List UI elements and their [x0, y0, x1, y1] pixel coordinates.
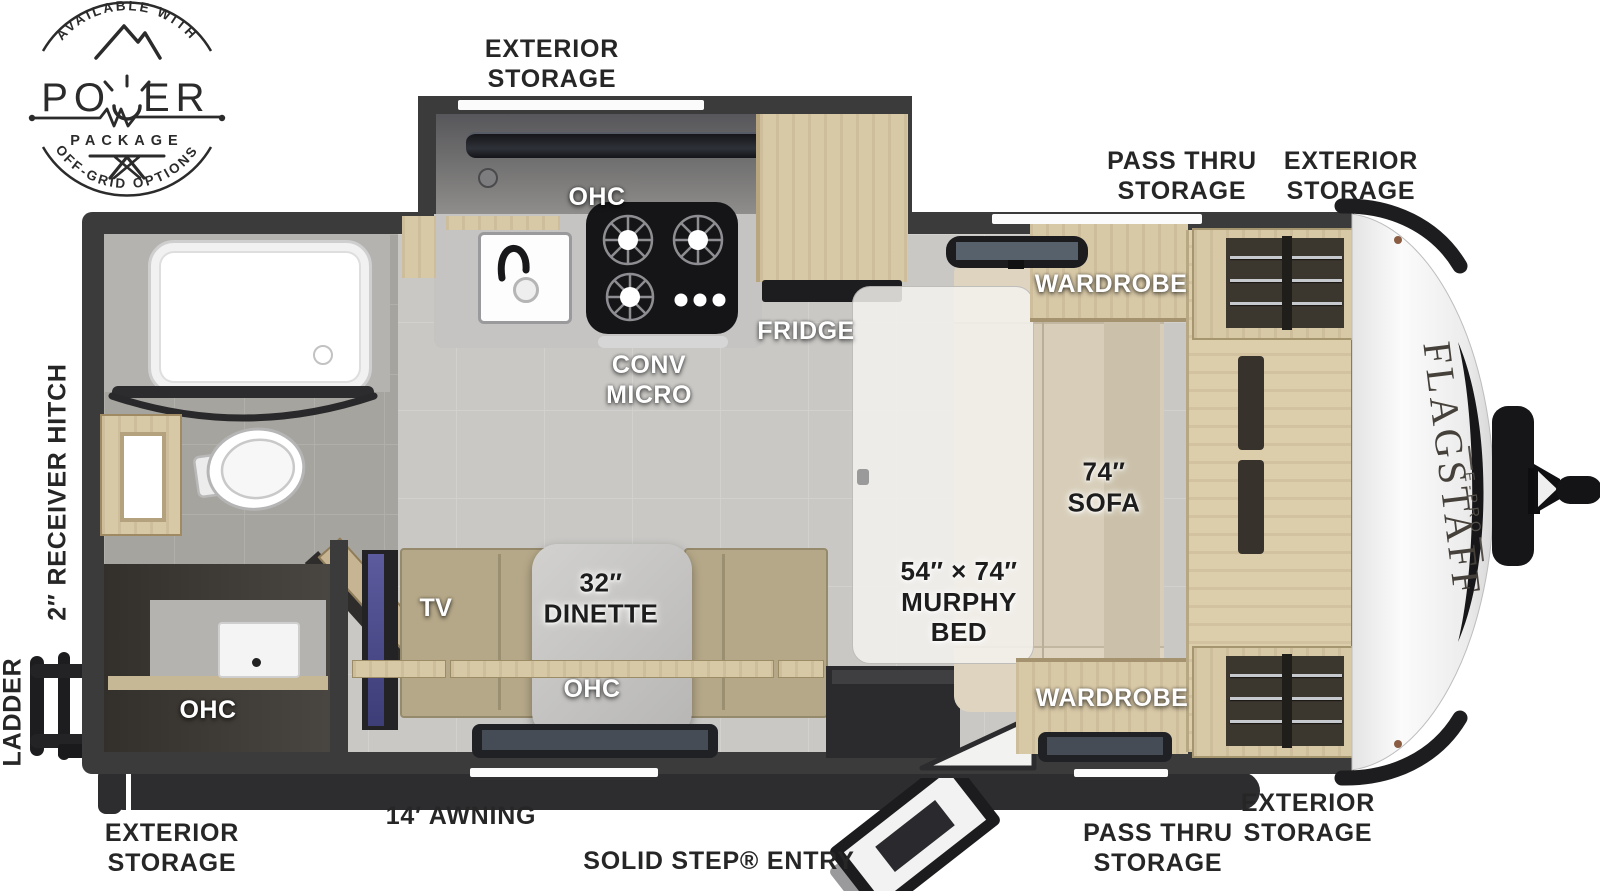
- sofa-label: 74″ SOFA: [1068, 456, 1141, 517]
- counter-end-panel: [402, 216, 436, 278]
- window-latch: [1008, 260, 1024, 269]
- storage-divider-wall: [330, 540, 348, 752]
- floorplan-scene: AVAILABLE WITH OFF-GRID OPTIONS PO ER PA…: [0, 0, 1600, 891]
- rear-storage-appliance: [218, 622, 300, 678]
- pass-thru-storage-label-bottom: PASS THRU STORAGE: [1083, 818, 1233, 878]
- conv-micro-label: CONV MICRO: [606, 350, 692, 410]
- entry-label: SOLID STEP® ENTRY: [583, 846, 854, 876]
- baggage-door-strip: [1074, 769, 1168, 777]
- exterior-storage-label-top: EXTERIOR STORAGE: [485, 34, 619, 94]
- bathtub: [148, 240, 372, 394]
- murphy-bed-label: 54″ × 74″ MURPHY BED: [901, 556, 1018, 648]
- dinette-bench-right: [684, 548, 828, 718]
- cooktop-knobs: [675, 294, 726, 307]
- power-package-badge: AVAILABLE WITH OFF-GRID OPTIONS PO ER PA…: [12, 0, 242, 210]
- sink-faucet-icon: [492, 218, 536, 284]
- kitchen-ohc-label: OHC: [568, 182, 625, 212]
- mountain-icon: [96, 26, 160, 58]
- murphy-bed-handle: [857, 469, 869, 485]
- window-glass: [956, 242, 1078, 260]
- pass-thru-post: [1282, 236, 1292, 330]
- baggage-door-strip: [458, 100, 704, 110]
- toilet: [190, 422, 310, 518]
- front-cap: FLAGSTAFF E-PRO: [1330, 190, 1600, 822]
- rear-storage-counter: [108, 676, 328, 690]
- cap-rivet: [1394, 236, 1402, 244]
- wardrobe-window: [1038, 732, 1172, 762]
- kitchen-backsplash-knob: [478, 168, 498, 188]
- bench-seam: [722, 554, 725, 710]
- bed-slat-slot: [1238, 460, 1264, 554]
- bumper-gap: [126, 770, 131, 812]
- dinette-ohc-shelf: [352, 660, 446, 678]
- wardrobe-bottom-label: WARDROBE: [1036, 683, 1189, 713]
- awning-bumper-bar: [104, 772, 1260, 810]
- badge-package-text: PACKAGE: [70, 133, 183, 149]
- dinette-window: [472, 724, 718, 758]
- badge-power-left: PO: [41, 76, 111, 120]
- tub-drain: [313, 345, 333, 365]
- badge-power-right: ER: [143, 76, 211, 120]
- exterior-storage-label-rear-bottom: EXTERIOR STORAGE: [105, 818, 239, 878]
- cap-rivet: [1394, 740, 1402, 748]
- pass-thru-post: [1282, 654, 1292, 748]
- fridge-label: FRIDGE: [757, 316, 854, 346]
- bench-seam: [498, 554, 501, 710]
- window-glass: [1047, 737, 1163, 755]
- entry-cabinet-top: [832, 670, 954, 684]
- dinette-ohc-label: OHC: [563, 674, 620, 704]
- sofa-seam: [1042, 266, 1044, 702]
- fridge-cabinet: [756, 114, 908, 282]
- svg-text:AVAILABLE WITH: AVAILABLE WITH: [53, 0, 201, 43]
- receiver-hitch-label: 2″ RECEIVER HITCH: [44, 363, 73, 621]
- tv-screen: [368, 554, 384, 726]
- baggage-door-strip: [992, 214, 1202, 224]
- tongue-jack-icon: [1492, 406, 1600, 566]
- dinette-ohc-shelf: [778, 660, 824, 678]
- oven-handle: [598, 336, 728, 348]
- exterior-storage-label-front-top: EXTERIOR STORAGE: [1284, 146, 1418, 206]
- bathroom-vanity: [100, 414, 182, 536]
- bed-slat-slot: [1238, 356, 1264, 450]
- sofa-window: [946, 236, 1088, 268]
- cooktop: [586, 202, 738, 334]
- exterior-storage-label-front-bottom: EXTERIOR STORAGE: [1241, 788, 1375, 848]
- rear-ohc-label: OHC: [179, 695, 236, 725]
- tv-label: TV: [420, 593, 453, 623]
- pass-thru-storage-label-top: PASS THRU STORAGE: [1107, 146, 1257, 206]
- badge-arc-top-text: AVAILABLE WITH: [53, 0, 201, 43]
- dinette-label: 32″ DINETTE: [544, 567, 659, 628]
- window-glass: [482, 730, 708, 750]
- rear-appliance-knob: [252, 658, 261, 667]
- vanity-mirror: [120, 432, 166, 522]
- awning-label: 14′ AWNING: [386, 801, 537, 831]
- baggage-door-strip: [470, 768, 658, 777]
- wardrobe-top-label: WARDROBE: [1035, 269, 1188, 299]
- ladder-label: LADDER: [0, 658, 28, 767]
- badge-line-dot-left: [29, 115, 35, 121]
- badge-line-dot-right: [219, 115, 225, 121]
